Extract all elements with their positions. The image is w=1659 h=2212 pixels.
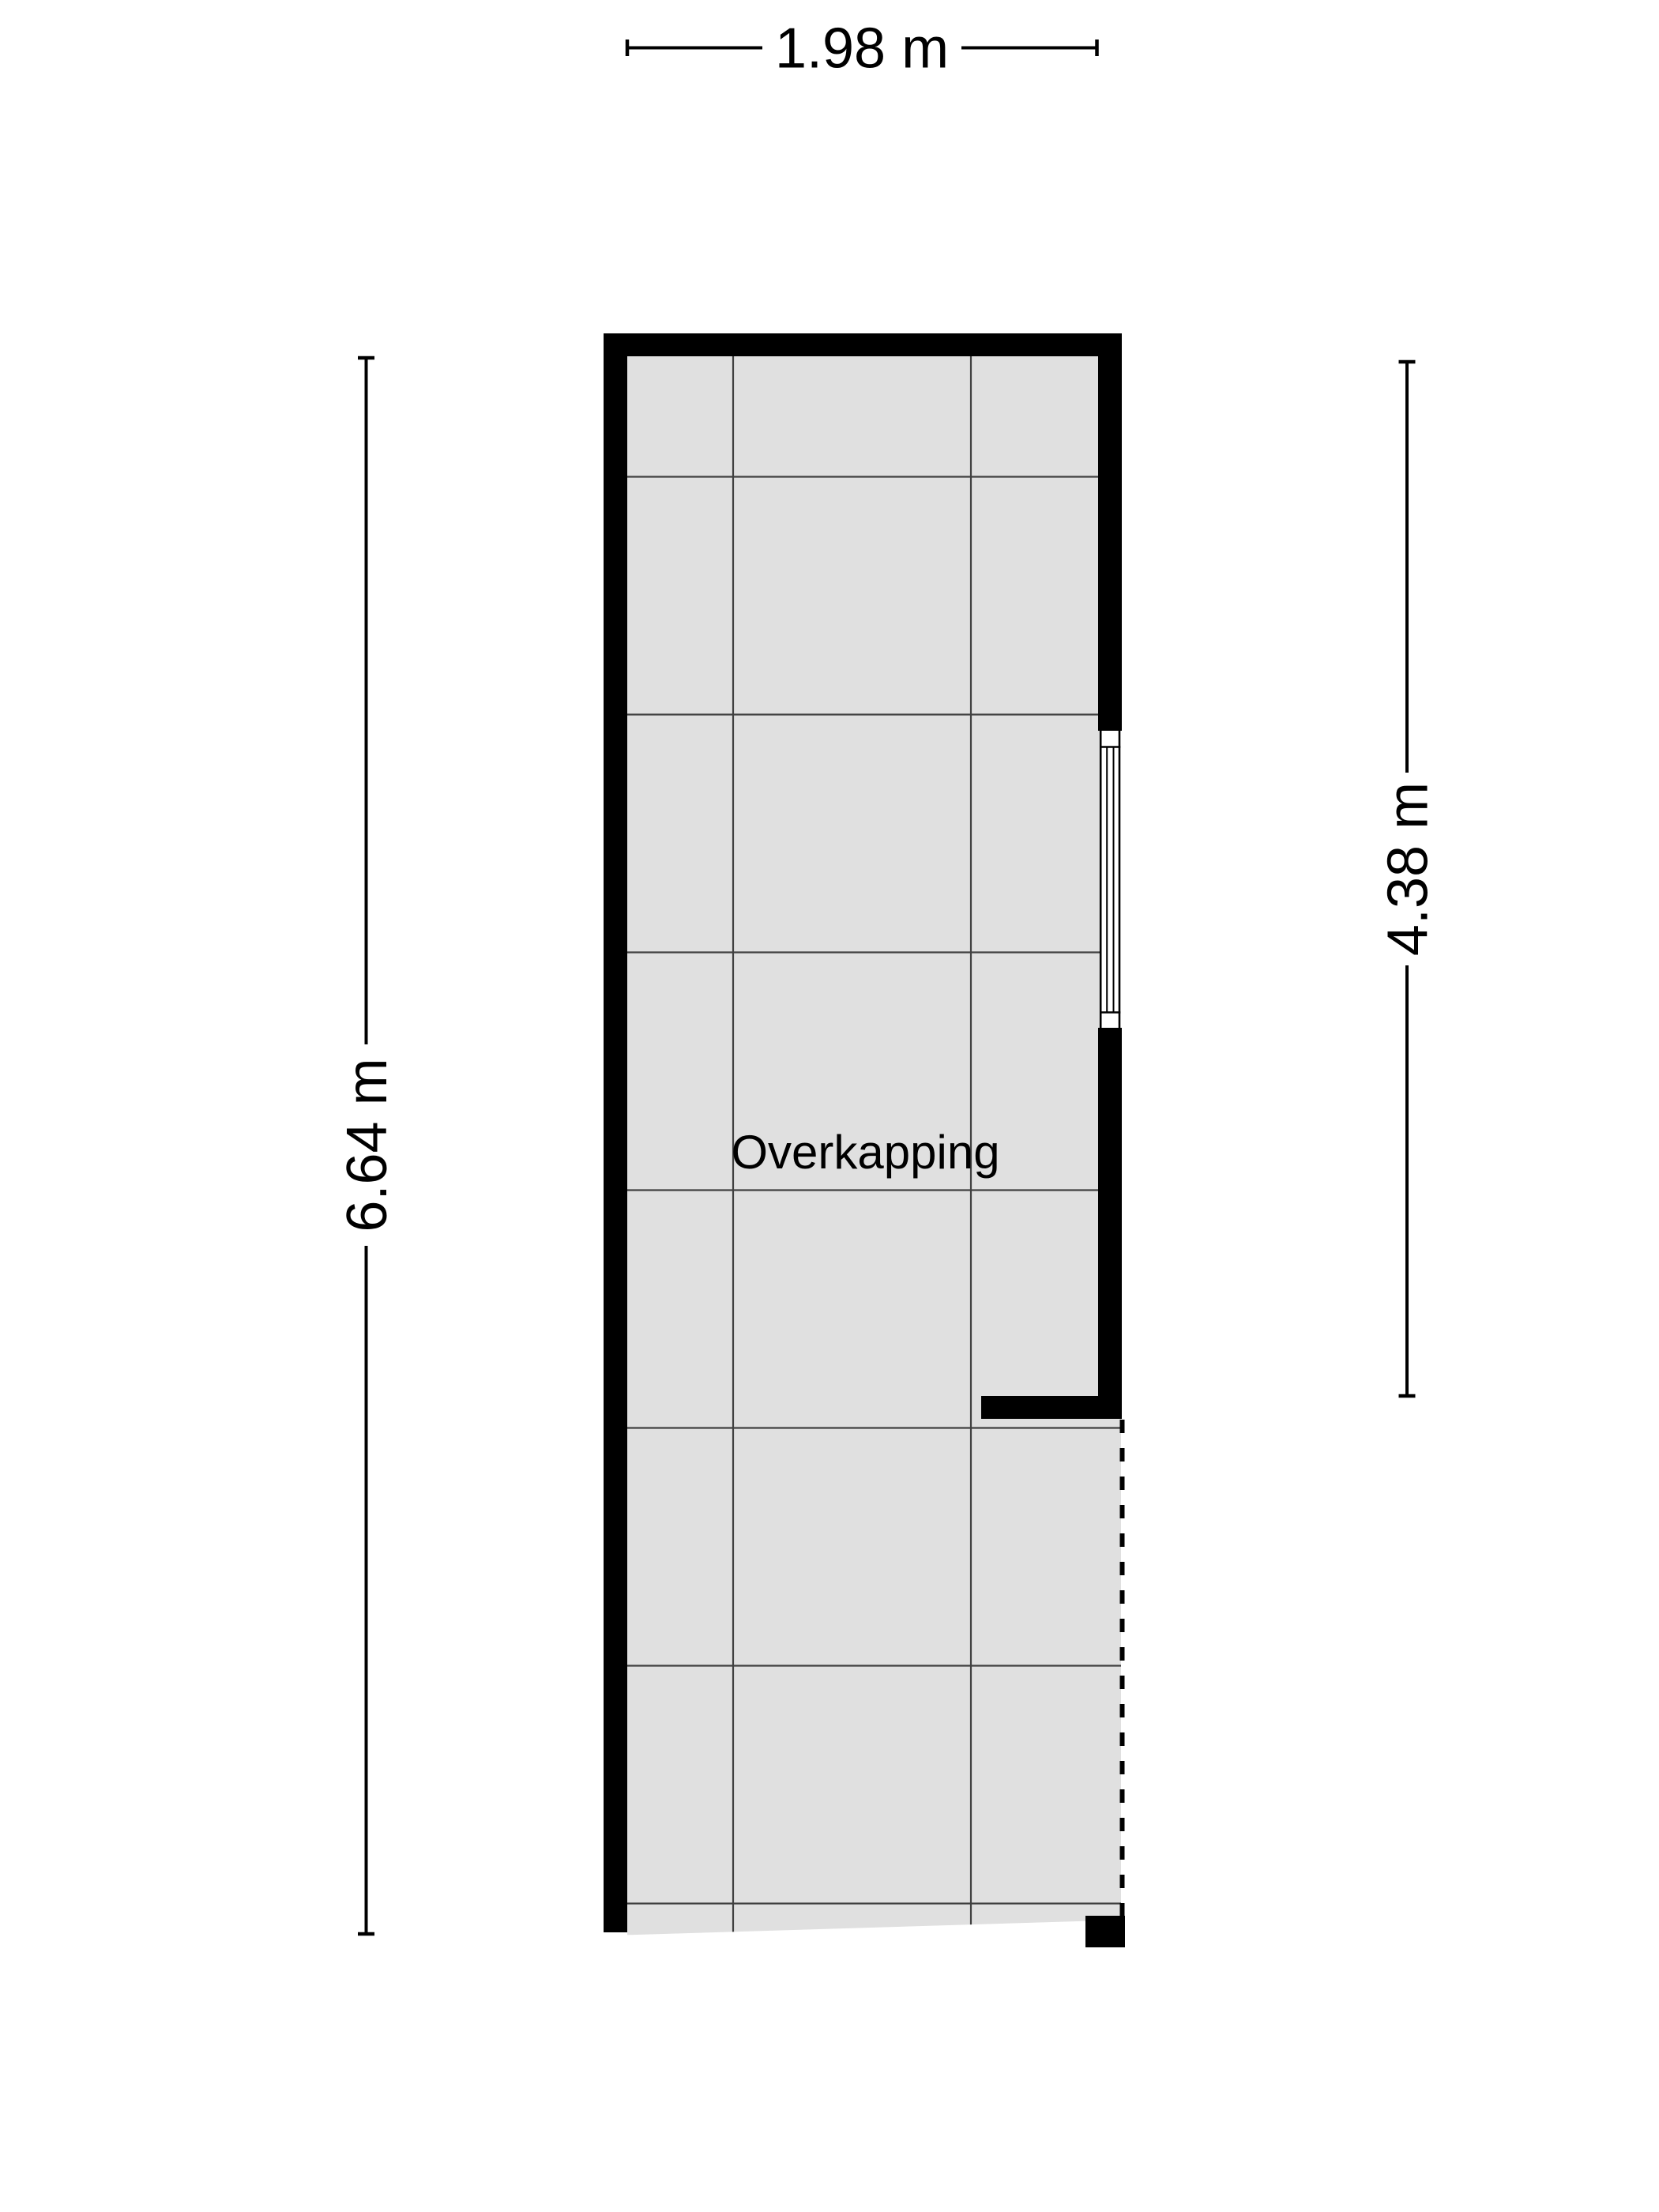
svg-text:1.98 m: 1.98 m <box>775 17 949 81</box>
svg-text:4.38 m: 4.38 m <box>1377 782 1440 956</box>
svg-text:Overkapping: Overkapping <box>731 1126 999 1179</box>
svg-text:6.64 m: 6.64 m <box>336 1058 399 1232</box>
